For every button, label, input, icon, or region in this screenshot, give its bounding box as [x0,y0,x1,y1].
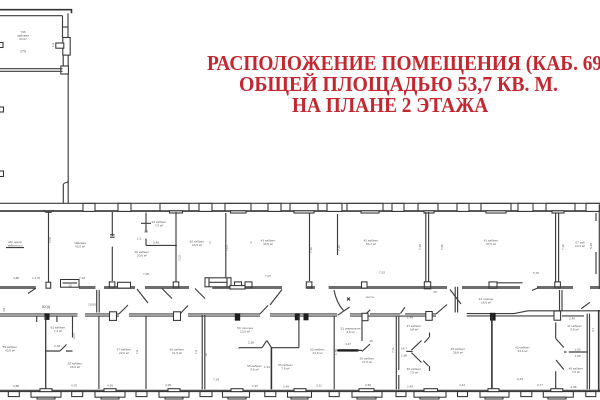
svg-text:7,6: 7,6 [194,350,198,355]
svg-text:49: 49 [369,339,373,343]
svg-text:7,02: 7,02 [48,237,52,243]
svg-text:S: S [250,241,252,245]
svg-text:7,24: 7,24 [213,378,219,382]
svg-text:3,77: 3,77 [537,383,543,387]
svg-text:2,98: 2,98 [570,385,576,389]
svg-text:43,5 м²: 43,5 м² [263,242,273,246]
svg-text:7,02: 7,02 [178,255,182,261]
svg-text:7,15: 7,15 [418,244,422,250]
svg-text:43,5 м²: 43,5 м² [75,245,85,249]
svg-text:9,8 м²: 9,8 м² [410,328,418,332]
svg-text:7,11: 7,11 [391,347,395,353]
svg-text:4,39: 4,39 [107,384,113,388]
svg-text:23,5 м²: 23,5 м² [192,243,202,247]
svg-text:7,10: 7,10 [561,244,565,250]
svg-text:20,6 м²: 20,6 м² [137,254,147,258]
svg-text:S: S [209,241,211,245]
svg-text:3,9 м²: 3,9 м² [346,330,354,334]
svg-text:зайнятості: зайнятості [7,243,22,247]
svg-text:5,9 м²: 5,9 м² [570,328,578,332]
svg-text:7,50: 7,50 [440,244,444,250]
svg-text:3,88: 3,88 [13,384,19,388]
svg-text:2,59: 2,59 [365,383,371,387]
svg-text:9,6 м²: 9,6 м² [250,368,258,372]
svg-text:13,9 м²: 13,9 м² [240,330,250,334]
svg-text:7,6 м²: 7,6 м² [572,370,580,374]
svg-text:2,8: 2,8 [144,230,149,234]
svg-text:179: 179 [20,50,26,54]
svg-text:13: 13 [68,283,72,287]
svg-text:26,6 м²: 26,6 м² [70,365,80,369]
svg-text:1,3: 1,3 [137,237,142,241]
svg-text:37,5 м²: 37,5 м² [486,242,496,246]
svg-text:2,30: 2,30 [54,344,60,348]
svg-text:4,7: 4,7 [591,328,595,333]
svg-text:1,63: 1,63 [574,348,580,352]
svg-text:4,88: 4,88 [13,276,19,280]
svg-text:0,43: 0,43 [517,377,523,381]
svg-text:18,6 м²: 18,6 м² [481,301,491,305]
svg-text:1,9: 1,9 [51,43,55,48]
svg-text:7,9 м²: 7,9 м² [410,371,418,375]
svg-text:7,6: 7,6 [135,350,139,355]
svg-text:4,70: 4,70 [71,384,77,388]
svg-text:7,10: 7,10 [309,247,313,253]
svg-text:3,11: 3,11 [316,384,322,388]
svg-text:2,38: 2,38 [248,341,254,345]
svg-text:7,4 м²: 7,4 м² [54,329,62,333]
svg-text:2,97: 2,97 [252,384,258,388]
svg-text:10,93: 10,93 [88,303,96,307]
svg-text:27,5 м²: 27,5 м² [362,360,372,364]
svg-text:14,7: 14,7 [401,347,407,351]
svg-text:п 4,70: п 4,70 [32,276,41,280]
svg-text:4,29: 4,29 [165,383,171,387]
svg-text:7,07: 7,07 [265,274,271,278]
svg-text:16: 16 [204,353,208,357]
svg-text:25: 25 [433,290,437,294]
svg-text:43,67: 43,67 [19,37,27,41]
svg-text:7,07: 7,07 [225,245,229,251]
svg-text:1,91: 1,91 [264,365,270,369]
svg-text:28,6 м²: 28,6 м² [453,351,463,355]
svg-text:7,24: 7,24 [79,276,85,280]
svg-text:2,49: 2,49 [407,385,413,389]
svg-text:43,6 м²: 43,6 м² [517,349,527,353]
svg-text:5,48: 5,48 [589,243,593,249]
svg-text:53,7 м²: 53,7 м² [366,242,376,246]
svg-text:7,6 м²: 7,6 м² [281,367,289,371]
svg-text:21,0 м²: 21,0 м² [172,351,182,355]
svg-text:22,0 м²: 22,0 м² [119,351,129,355]
svg-text:1,68: 1,68 [574,354,580,358]
svg-text:7,10: 7,10 [337,245,341,251]
svg-text:7,06: 7,06 [143,272,149,276]
svg-text:1,68: 1,68 [401,354,407,358]
svg-text:4,8: 4,8 [2,308,6,313]
svg-text:лестн.: лестн. [365,295,374,299]
svg-text:2,49: 2,49 [569,317,575,321]
svg-text:2,49: 2,49 [283,385,289,389]
svg-text:ВХІД: ВХІД [42,305,51,309]
svg-text:43,6 м²: 43,6 м² [5,349,15,353]
svg-text:1,75: 1,75 [334,349,338,355]
svg-text:21,9 м²: 21,9 м² [312,351,322,355]
svg-text:10,4 м²: 10,4 м² [575,244,585,248]
svg-text:1,49: 1,49 [407,316,413,320]
svg-text:2,40: 2,40 [153,241,159,245]
svg-text:7,53: 7,53 [379,271,385,275]
svg-text:5,70: 5,70 [533,271,539,275]
svg-text:4,47: 4,47 [345,342,351,346]
svg-text:7,0 м²: 7,0 м² [155,224,163,228]
svg-text:4,43: 4,43 [459,383,465,387]
svg-text:2,07: 2,07 [72,333,76,339]
